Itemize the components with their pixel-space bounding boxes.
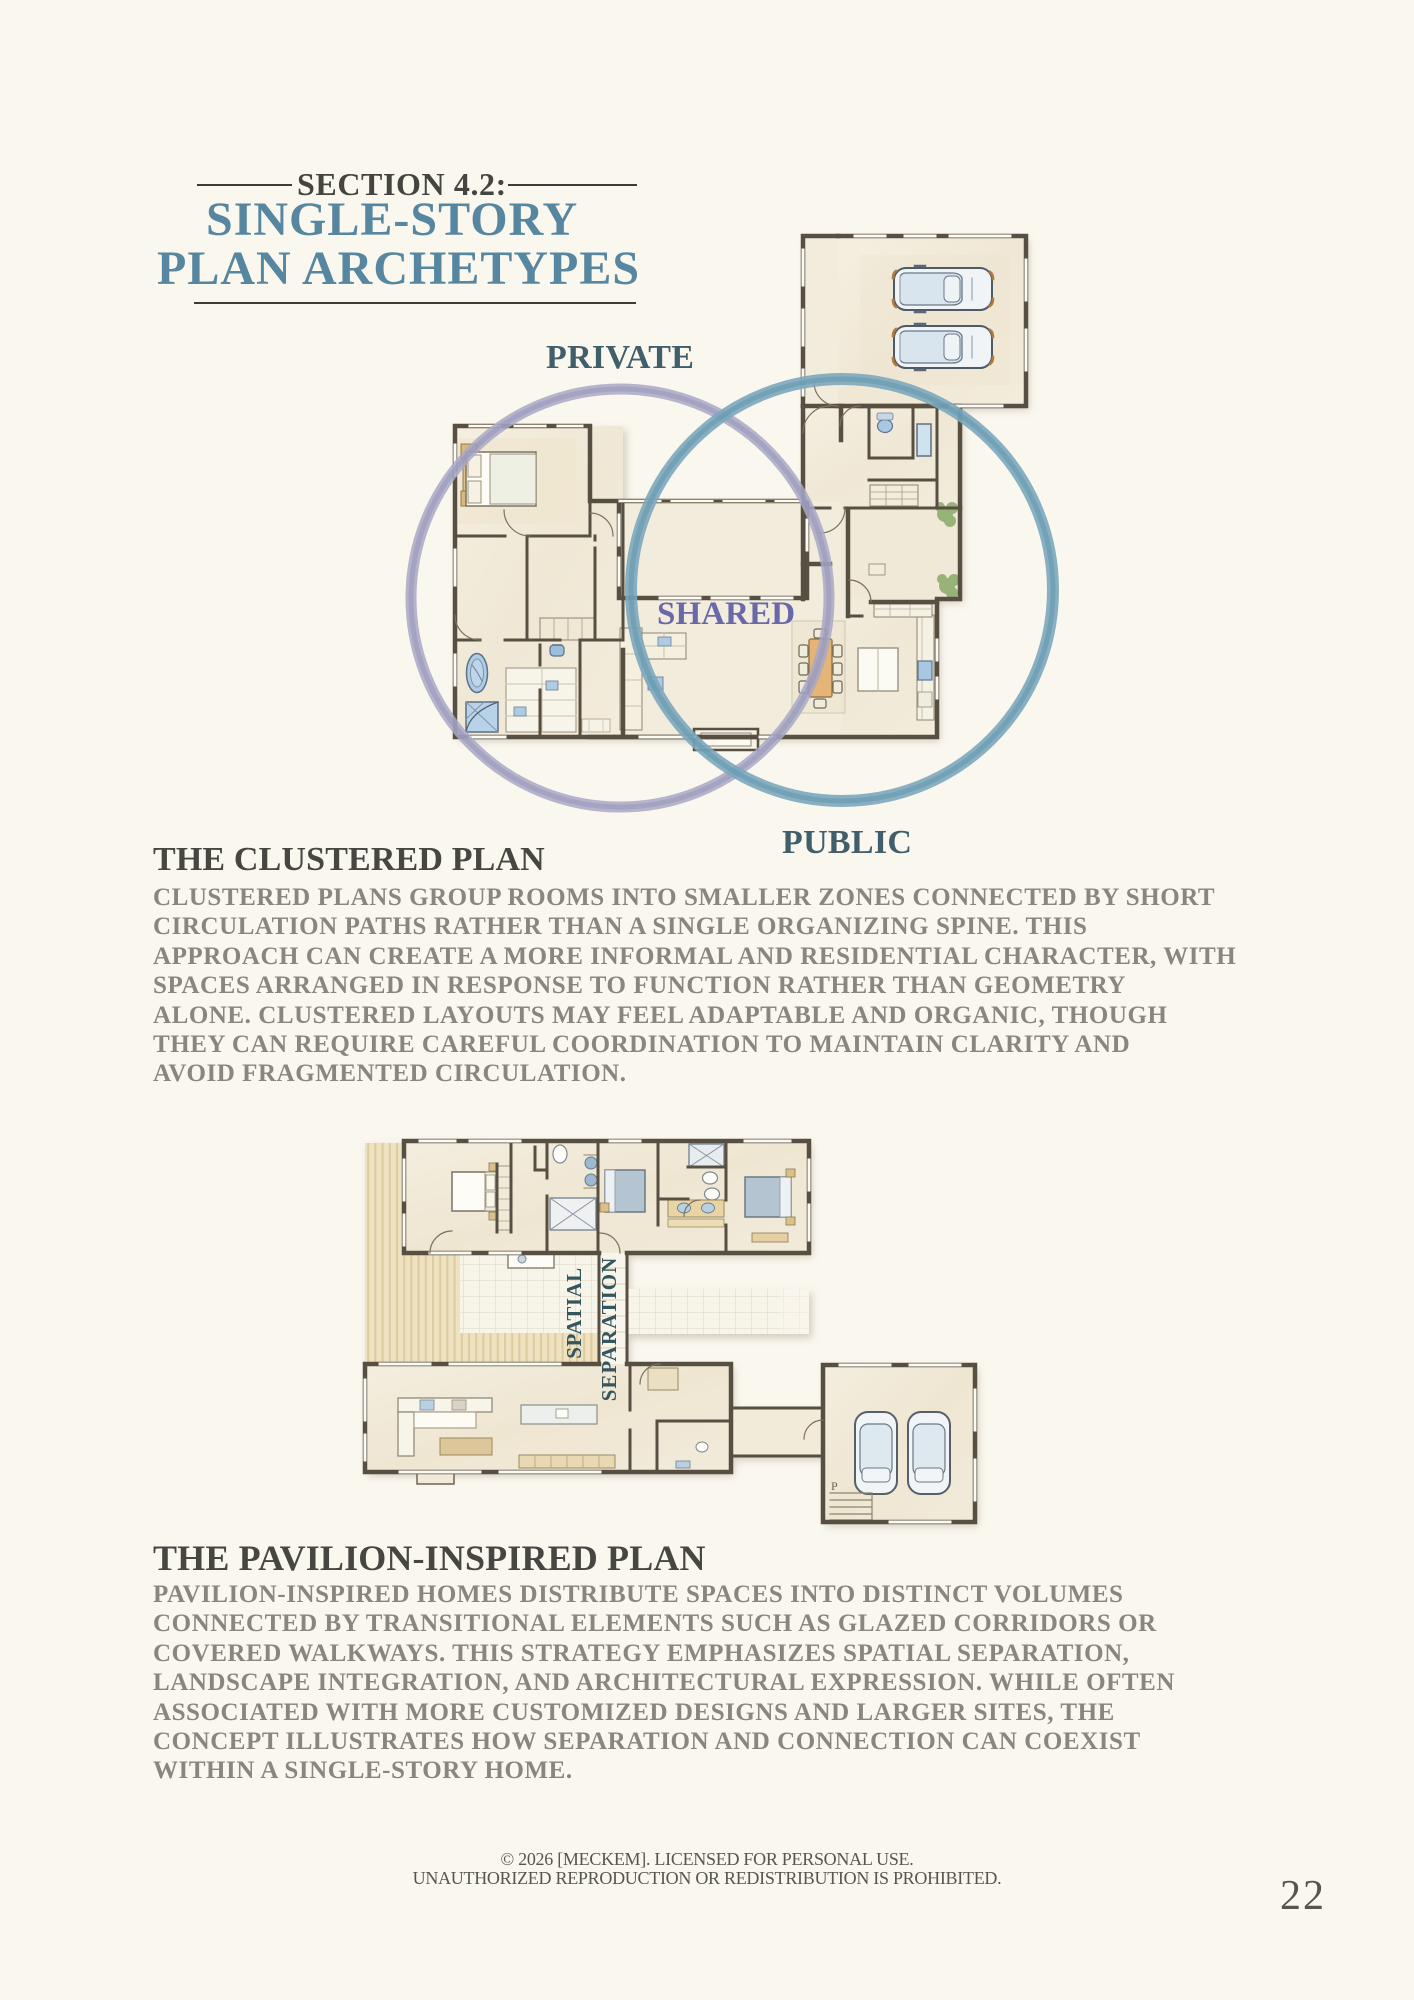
svg-text:P: P bbox=[831, 1479, 838, 1493]
